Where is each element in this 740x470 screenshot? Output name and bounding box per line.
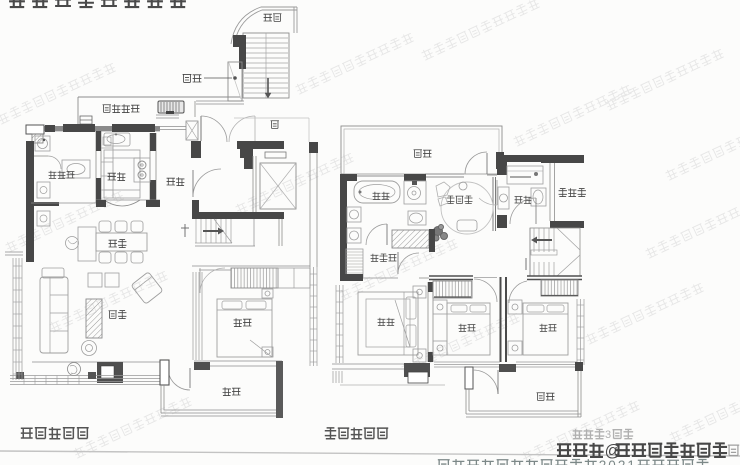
svg-text:2: 2 [618,458,626,465]
svg-text:0: 0 [608,458,616,465]
svg-text:3: 3 [605,429,611,441]
svg-text:2: 2 [599,458,607,465]
svg-text:1: 1 [627,458,635,465]
